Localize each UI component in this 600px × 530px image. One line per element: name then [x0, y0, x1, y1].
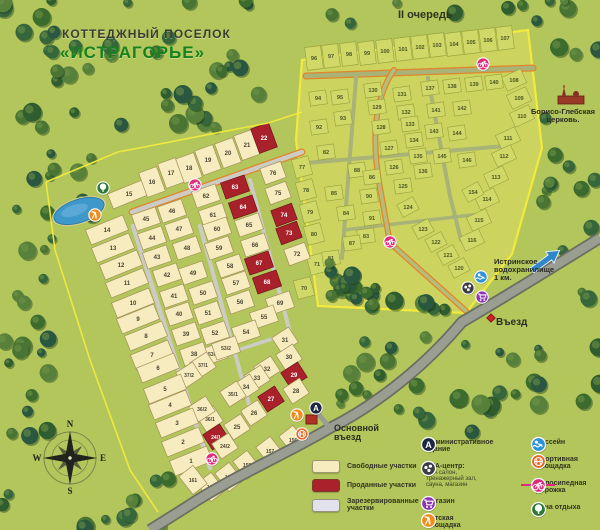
svg-text:84: 84	[343, 211, 350, 217]
svg-text:37/1: 37/1	[198, 363, 208, 369]
svg-text:126: 126	[389, 165, 398, 171]
plot-phase2-104: 104	[445, 32, 464, 57]
main-entrance-label: Основной въезд	[334, 424, 392, 443]
plot-phase2-127: 127	[380, 140, 399, 156]
svg-text:67: 67	[256, 261, 263, 267]
svg-text:99: 99	[364, 51, 370, 57]
legend-icon-row: Велосипедная дорожка	[530, 477, 600, 494]
legend-area-row: Зарезервированные участки	[312, 498, 425, 512]
svg-text:77: 77	[299, 165, 305, 171]
bike-icon	[189, 179, 202, 193]
plot-phase2-87: 87	[343, 235, 362, 251]
svg-text:161: 161	[189, 478, 198, 484]
svg-text:57: 57	[233, 281, 240, 287]
svg-text:104: 104	[449, 42, 459, 48]
plot-phase2-107: 107	[496, 26, 515, 51]
legend-swatch	[312, 479, 340, 492]
svg-text:121: 121	[443, 253, 452, 259]
legend-icon-row: Спортивная площадка	[530, 453, 600, 470]
legend-icon-row: SPA-центр:SPA салон, тренажерный зал, са…	[420, 460, 490, 488]
svg-text:115: 115	[474, 218, 483, 224]
svg-text:10: 10	[130, 301, 137, 307]
svg-text:13: 13	[110, 246, 117, 252]
svg-text:62: 62	[203, 194, 210, 200]
svg-text:142: 142	[457, 106, 466, 112]
svg-text:88: 88	[354, 168, 360, 174]
svg-text:31: 31	[282, 338, 289, 344]
svg-text:15: 15	[126, 192, 133, 198]
svg-text:49: 49	[190, 271, 197, 277]
svg-text:34: 34	[243, 385, 250, 391]
plot-phase2-100: 100	[376, 39, 395, 64]
svg-text:123: 123	[418, 227, 427, 233]
svg-text:51: 51	[205, 311, 212, 317]
svg-text:36/1: 36/1	[205, 417, 215, 423]
svg-text:21: 21	[244, 143, 251, 149]
plot-phase1-50: 50	[188, 281, 217, 305]
svg-text:91: 91	[369, 216, 375, 222]
svg-text:82: 82	[323, 150, 329, 156]
svg-text:110: 110	[517, 114, 526, 120]
plot-phase2-145: 145	[433, 148, 452, 164]
svg-text:73: 73	[286, 231, 293, 237]
plot-phase2-86: 86	[363, 169, 382, 185]
plot-phase1-72: 72	[284, 242, 310, 265]
plot-phase1-49: 49	[178, 261, 207, 285]
sport-icon	[296, 428, 309, 442]
svg-text:103: 103	[432, 43, 441, 49]
plot-phase1-75: 75	[265, 181, 291, 204]
plot-phase2-102: 102	[411, 35, 430, 60]
svg-text:109: 109	[514, 96, 523, 102]
svg-text:46: 46	[169, 209, 176, 215]
rest-icon	[97, 182, 110, 196]
svg-text:96: 96	[311, 56, 317, 62]
svg-text:44: 44	[149, 236, 156, 242]
svg-text:33: 33	[254, 376, 261, 382]
svg-text:30: 30	[286, 355, 293, 361]
bike-icon	[477, 58, 490, 72]
plot-phase2-128: 128	[372, 119, 391, 135]
phase2-label: II очередь	[398, 10, 453, 22]
plot-phase2-97: 97	[322, 44, 341, 69]
shop-icon	[476, 291, 489, 305]
plot-status-legend: Свободные участкиПроданные участкиЗарезе…	[312, 460, 425, 518]
site-map: A969798991001011021031041051061071081091…	[0, 0, 600, 530]
svg-text:122: 122	[431, 240, 440, 246]
svg-text:136: 136	[418, 169, 427, 175]
plot-phase2-126: 126	[385, 159, 404, 175]
svg-text:102: 102	[415, 45, 424, 51]
bike-icon	[206, 453, 219, 467]
svg-text:143: 143	[429, 129, 438, 135]
svg-text:24/2: 24/2	[220, 444, 230, 450]
svg-text:79: 79	[307, 210, 313, 216]
plot-phase2-130: 130	[364, 82, 383, 98]
plot-phase2-136: 136	[414, 163, 433, 179]
playground-icon	[89, 209, 102, 223]
svg-text:50: 50	[200, 291, 207, 297]
svg-text:18: 18	[186, 166, 193, 172]
svg-text:127: 127	[384, 146, 393, 152]
svg-text:28: 28	[293, 389, 300, 395]
svg-text:131: 131	[397, 92, 406, 98]
svg-text:64: 64	[240, 205, 247, 211]
svg-text:132: 132	[401, 110, 410, 116]
plot-phase2-93: 93	[334, 110, 353, 126]
svg-text:37/2: 37/2	[184, 373, 194, 379]
svg-text:105: 105	[466, 40, 475, 46]
plot-phase2-101: 101	[394, 37, 413, 62]
plot-phase2-90: 90	[360, 188, 379, 204]
svg-text:36/2: 36/2	[197, 407, 207, 413]
svg-text:38: 38	[191, 352, 198, 358]
svg-text:27: 27	[268, 397, 275, 403]
svg-text:26: 26	[251, 411, 258, 417]
svg-text:140: 140	[489, 80, 498, 86]
legend-icon-row: Зона отдыха	[530, 501, 600, 511]
svg-text:146: 146	[462, 158, 471, 164]
svg-text:66: 66	[252, 243, 259, 249]
svg-text:68: 68	[264, 280, 271, 286]
svg-text:95: 95	[337, 95, 343, 101]
legend-area-label: Свободные участки	[347, 463, 425, 470]
svg-text:100: 100	[380, 49, 389, 55]
plot-phase2-98: 98	[340, 42, 359, 67]
plot-phase2-144: 144	[448, 125, 467, 141]
svg-text:45: 45	[143, 217, 150, 223]
svg-text:12: 12	[118, 263, 125, 269]
bike-icon	[384, 236, 397, 250]
svg-text:35/1: 35/1	[228, 392, 238, 398]
svg-text:108: 108	[509, 78, 518, 84]
svg-text:139: 139	[469, 82, 478, 88]
plot-phase2-138: 138	[443, 78, 462, 94]
plot-phase1-42: 42	[152, 263, 181, 287]
svg-text:120: 120	[454, 266, 463, 272]
svg-text:114: 114	[482, 197, 492, 203]
svg-text:138: 138	[447, 84, 456, 90]
pool-icon	[475, 271, 488, 285]
svg-text:41: 41	[171, 294, 178, 300]
plot-phase2-85: 85	[325, 185, 344, 201]
svg-text:112: 112	[499, 154, 508, 160]
plot-phase2-141: 141	[427, 102, 446, 118]
svg-text:72: 72	[294, 252, 301, 258]
svg-text:17: 17	[168, 171, 175, 177]
svg-text:83: 83	[363, 234, 369, 240]
plot-phase2-82: 82	[317, 144, 336, 160]
reservoir-label: Истринское водохранилище 1 км.	[494, 258, 552, 282]
plot-phase2-129: 129	[368, 99, 387, 115]
svg-text:61: 61	[210, 213, 217, 219]
svg-text:106: 106	[483, 38, 492, 44]
svg-text:14: 14	[104, 228, 111, 234]
plot-phase2-134: 134	[405, 132, 424, 148]
church-icon	[558, 85, 584, 104]
svg-text:63: 63	[232, 185, 239, 191]
plot-phase2-99: 99	[358, 41, 377, 66]
plot-phase2-125: 125	[394, 178, 413, 194]
svg-text:22: 22	[261, 136, 268, 142]
svg-text:76: 76	[270, 171, 277, 177]
svg-text:124: 124	[403, 205, 413, 211]
plot-phase2-143: 143	[425, 123, 444, 139]
svg-text:137: 137	[425, 86, 434, 92]
svg-text:59: 59	[216, 246, 223, 252]
playground-icon	[291, 409, 304, 423]
svg-text:29: 29	[291, 373, 298, 379]
svg-text:39: 39	[183, 332, 190, 338]
plot-phase2-106: 106	[479, 28, 498, 53]
svg-text:53/2: 53/2	[221, 346, 231, 352]
svg-text:42: 42	[164, 273, 171, 279]
compass-n: N	[67, 419, 74, 429]
svg-text:94: 94	[315, 96, 322, 102]
svg-text:101: 101	[398, 47, 407, 53]
svg-text:141: 141	[431, 108, 440, 114]
compass-e: E	[100, 453, 106, 463]
legend-area-label: Проданные участки	[347, 482, 425, 489]
plot-phase1-39: 39	[171, 322, 200, 346]
svg-text:65: 65	[246, 223, 253, 229]
svg-text:145: 145	[437, 154, 446, 160]
settlement-title-line1: КОТТЕДЖНЫЙ ПОСЕЛОК	[62, 28, 231, 41]
plot-phase2-146: 146	[458, 152, 477, 168]
legend-area-row: Проданные участки	[312, 479, 425, 492]
plot-phase2-84: 84	[337, 205, 356, 221]
plot-phase2-135: 135	[409, 148, 428, 164]
svg-text:135: 135	[413, 154, 422, 160]
settlement-title-line2: «ИСТРАГОРЬЕ»	[60, 44, 205, 62]
svg-text:69: 69	[277, 301, 284, 307]
compass-w: W	[33, 453, 42, 463]
svg-text:113: 113	[491, 175, 500, 181]
svg-text:129: 129	[372, 105, 381, 111]
svg-text:111: 111	[504, 136, 513, 142]
svg-text:107: 107	[500, 36, 509, 42]
svg-text:25: 25	[234, 425, 241, 431]
svg-text:154: 154	[468, 190, 478, 196]
svg-text:47: 47	[176, 227, 183, 233]
svg-text:43: 43	[154, 255, 161, 261]
svg-text:90: 90	[366, 194, 372, 200]
admin-icon	[310, 402, 323, 416]
compass-s: S	[67, 486, 72, 496]
legend-icon-row: Административное здание	[420, 436, 490, 453]
plot-phase2-91: 91	[363, 210, 382, 226]
svg-text:16: 16	[149, 180, 156, 186]
church-label: Борисо-Глебская церковь.	[527, 108, 599, 124]
svg-text:52: 52	[212, 331, 219, 337]
svg-text:80: 80	[311, 232, 317, 238]
svg-text:93: 93	[340, 116, 346, 122]
plot-phase2-137: 137	[421, 80, 440, 96]
plot-phase2-131: 131	[393, 86, 412, 102]
plot-phase1-48: 48	[172, 236, 201, 260]
legend-swatch	[312, 460, 340, 473]
svg-text:71: 71	[314, 262, 320, 268]
plot-phase2-92: 92	[310, 119, 329, 135]
svg-text:98: 98	[346, 52, 352, 58]
svg-text:75: 75	[275, 191, 282, 197]
svg-text:78: 78	[303, 188, 309, 194]
plot-phase2-96: 96	[305, 46, 324, 71]
svg-text:74: 74	[281, 213, 288, 219]
svg-text:55: 55	[261, 315, 268, 321]
plot-phase2-139: 139	[465, 76, 484, 92]
entrance-label: Въезд	[496, 318, 527, 329]
plot-phase2-95: 95	[331, 89, 350, 105]
svg-text:125: 125	[398, 184, 407, 190]
legend-area-row: Свободные участки	[312, 460, 425, 473]
legend-icon-row: Детская площадка	[420, 512, 490, 529]
svg-text:144: 144	[452, 131, 462, 137]
plot-phase2-133: 133	[401, 116, 420, 132]
svg-text:58: 58	[227, 264, 234, 270]
svg-text:56: 56	[237, 300, 244, 306]
entrance-building	[306, 415, 317, 424]
plot-phase2-142: 142	[453, 100, 472, 116]
legend-area-label: Зарезервированные участки	[347, 498, 425, 512]
plot-phase2-105: 105	[462, 30, 481, 55]
plot-phase2-94: 94	[309, 90, 328, 106]
svg-text:70: 70	[301, 286, 307, 292]
legend-icon-row: Магазин	[420, 495, 490, 505]
svg-text:116: 116	[467, 238, 476, 244]
spa-icon	[462, 282, 475, 296]
svg-text:19: 19	[205, 158, 212, 164]
svg-text:48: 48	[184, 246, 191, 252]
svg-text:92: 92	[316, 125, 322, 131]
plot-phase2-103: 103	[428, 33, 447, 58]
legend-icon-row: Бассейн	[530, 436, 600, 446]
legend-swatch	[312, 499, 340, 512]
svg-text:133: 133	[405, 122, 414, 128]
plot-phase2-140: 140	[485, 74, 504, 90]
svg-text:128: 128	[376, 125, 385, 131]
plot-phase1-51: 51	[193, 301, 222, 325]
svg-text:134: 134	[409, 138, 419, 144]
svg-text:85: 85	[331, 191, 337, 197]
svg-text:130: 130	[368, 88, 377, 94]
svg-text:97: 97	[328, 54, 334, 60]
svg-text:40: 40	[176, 312, 183, 318]
svg-text:54: 54	[243, 330, 250, 336]
entrance-marker	[487, 314, 495, 322]
plot-phase2-70: 70	[293, 277, 314, 300]
svg-text:60: 60	[214, 227, 221, 233]
svg-text:86: 86	[369, 175, 375, 181]
svg-text:20: 20	[225, 151, 232, 157]
svg-text:11: 11	[124, 281, 131, 287]
svg-text:87: 87	[349, 241, 355, 247]
